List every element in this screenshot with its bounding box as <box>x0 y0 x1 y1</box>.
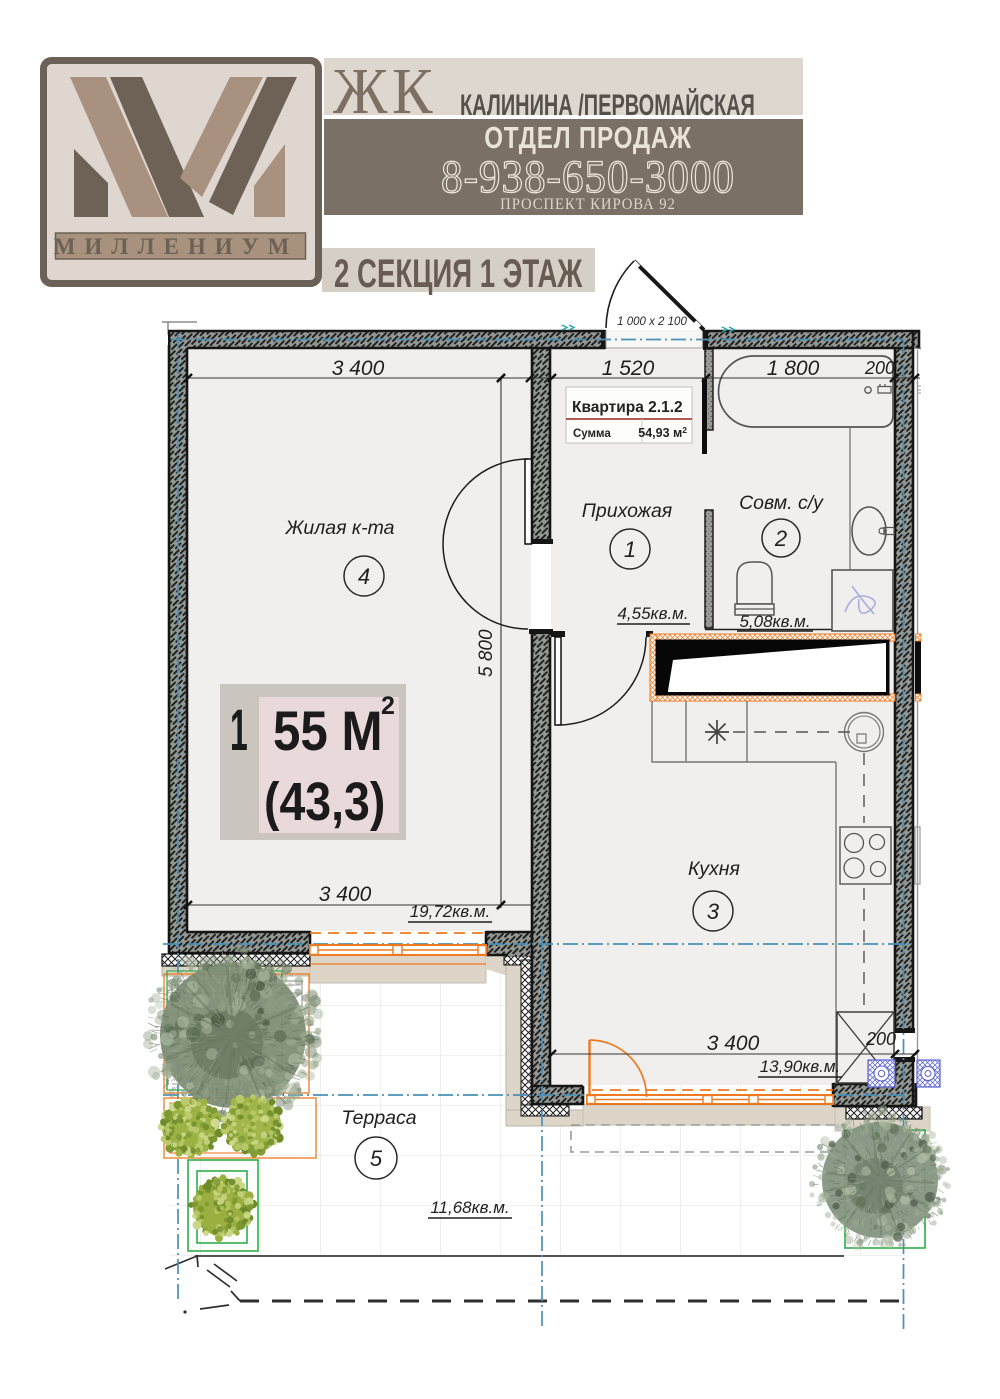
svg-text:Терраса: Терраса <box>341 1107 416 1129</box>
svg-text:2: 2 <box>774 526 787 551</box>
svg-text:Сумма: Сумма <box>573 428 611 440</box>
svg-text:(43,3): (43,3) <box>264 771 385 832</box>
svg-text:19,72кв.м.: 19,72кв.м. <box>410 902 491 921</box>
svg-text:4,55кв.м.: 4,55кв.м. <box>617 604 688 623</box>
svg-text:1 000 x 2 100: 1 000 x 2 100 <box>617 316 687 328</box>
svg-text:Прихожая: Прихожая <box>582 500 673 522</box>
svg-text:1: 1 <box>624 537 636 562</box>
svg-text:200: 200 <box>864 358 895 378</box>
svg-text:5 800: 5 800 <box>476 629 497 677</box>
svg-text:2: 2 <box>381 692 395 720</box>
svg-text:55 М: 55 М <box>273 700 383 763</box>
svg-text:11,68кв.м.: 11,68кв.м. <box>430 1198 509 1217</box>
svg-text:13,90кв.м.: 13,90кв.м. <box>760 1057 841 1076</box>
svg-text:Совм. с/у: Совм. с/у <box>739 492 824 514</box>
svg-text:Кухня: Кухня <box>688 858 741 880</box>
svg-text:5,08кв.м.: 5,08кв.м. <box>739 612 810 631</box>
svg-text:1 800: 1 800 <box>767 357 820 380</box>
svg-text:54,93 м2: 54,93 м2 <box>638 425 687 440</box>
svg-text:3: 3 <box>707 899 720 924</box>
svg-text:4: 4 <box>358 564 370 589</box>
svg-text:1 520: 1 520 <box>602 357 655 380</box>
svg-text:1: 1 <box>230 698 248 762</box>
svg-text:200: 200 <box>865 1029 896 1049</box>
svg-text:3 400: 3 400 <box>707 1032 760 1055</box>
svg-text:3 400: 3 400 <box>332 357 385 380</box>
svg-text:Квартира 2.1.2: Квартира 2.1.2 <box>572 399 683 416</box>
svg-text:3 400: 3 400 <box>319 883 372 906</box>
svg-text:5: 5 <box>370 1146 383 1171</box>
svg-text:Жилая к-та: Жилая к-та <box>285 517 395 539</box>
